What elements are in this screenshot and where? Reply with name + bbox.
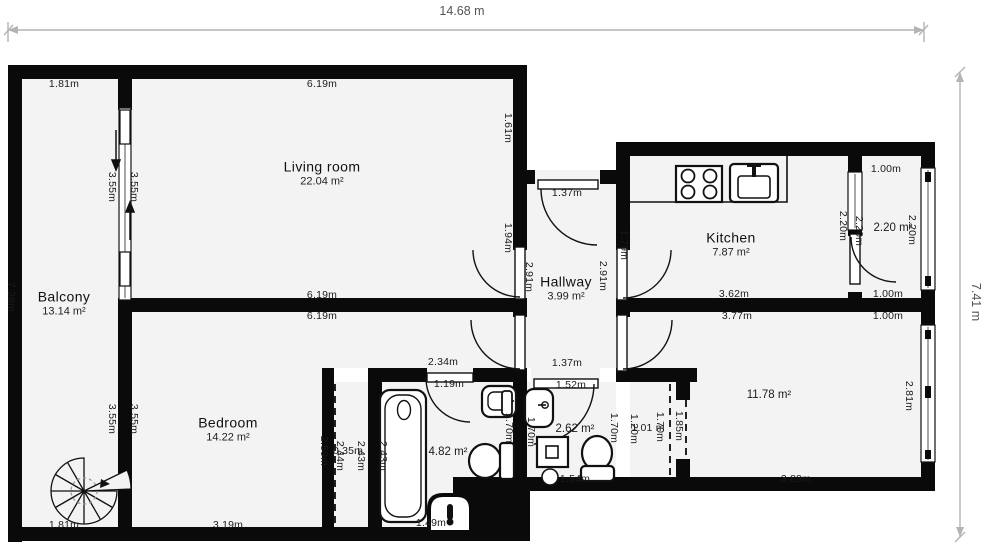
dimension-label: 1.70m (503, 413, 515, 443)
room-label-living: Living room 22.04 m² (284, 159, 361, 188)
dimension-label: 6.19m (307, 78, 337, 90)
stove-icon (676, 166, 722, 202)
dimension-label: 1.54m (560, 473, 590, 485)
dimension-label: 2.91m (523, 262, 535, 292)
dimension-label: 7.26m (5, 282, 17, 312)
small-room-window (921, 168, 935, 290)
dimension-label: 2.20m (906, 215, 918, 245)
dimension-label: 2.43m (355, 441, 367, 471)
dimension-label: 3.62m (719, 288, 749, 300)
dimension-label: 6.19m (307, 310, 337, 322)
dimension-label: 1.00m (873, 310, 903, 322)
room-name: Balcony (38, 289, 91, 305)
room-area-big-room: 11.78 m² (747, 389, 792, 401)
room-area: 7.87 m² (706, 247, 756, 259)
dimension-label: 1.85m (673, 411, 685, 441)
room-area-bathroom: 4.82 m² (429, 446, 468, 458)
dimension-label: 1.52m (556, 379, 586, 391)
dimension-label: 2.59m (318, 436, 330, 466)
dimension-label: 2.81m (903, 381, 915, 411)
bathroom-toilet-icon (469, 443, 514, 479)
room-name: Living room (284, 159, 361, 175)
big-room-window (921, 325, 935, 462)
dimension-label: 1.37m (552, 187, 582, 199)
room-name: Kitchen (706, 230, 756, 246)
room-name: Hallway (540, 274, 592, 290)
room-area: 13.14 m² (38, 306, 91, 318)
wall-radiator-icon (502, 391, 512, 415)
dimension-label: 1.94m (502, 223, 514, 253)
room-area: 14.22 m² (198, 432, 258, 444)
room-label-kitchen: Kitchen 7.87 m² (706, 230, 756, 259)
overall-width-label: 14.68 m (439, 4, 484, 18)
room-label-hallway: Hallway 3.99 m² (540, 274, 592, 303)
dimension-label: 1.70m (654, 412, 666, 442)
dimension-label: 3.55m (106, 404, 118, 434)
floorplan-viewer: 14.68 m 7.41 m Balcony 13.14 m² Living r… (0, 0, 992, 544)
room-name: Bedroom (198, 415, 258, 431)
dimension-label: 3.19m (213, 519, 243, 531)
dimension-label: 1.81m (49, 519, 79, 531)
dimension-label: 3.89m (781, 473, 811, 485)
dimension-label: 1.79m (618, 230, 630, 260)
floorplan-drawing (0, 0, 992, 544)
dimension-label: 2.20m (853, 216, 865, 246)
dimension-label: 1.00m (871, 163, 901, 175)
dimension-label: 3.55m (128, 172, 140, 202)
dimension-label: 1.70m (525, 417, 537, 447)
dimension-label: 1.61m (502, 113, 514, 143)
dimension-label: 1.70m (608, 413, 620, 443)
room-area: 22.04 m² (284, 176, 361, 188)
dimension-label: 2.91m (597, 261, 609, 291)
kitchen-sink-icon (730, 164, 778, 202)
dimension-label: 2.20m (837, 211, 849, 241)
dimension-label: 1.19m (434, 378, 464, 390)
room-label-bedroom: Bedroom 14.22 m² (198, 415, 258, 444)
dimension-label: 2.34m (428, 356, 458, 368)
dimension-label: 2.43m (377, 441, 389, 471)
room-area: 3.99 m² (540, 291, 592, 303)
dimension-label: 3.55m (106, 172, 118, 202)
room-area-wc: 2.62 m² (556, 423, 595, 435)
dimension-label: 6.19m (307, 289, 337, 301)
dimension-label: 3.77m (722, 310, 752, 322)
dimension-label: 1.00m (873, 288, 903, 300)
dimension-label: 1.49m (416, 517, 446, 529)
overall-height-label: 7.41 m (969, 283, 983, 321)
dimension-label: 1.37m (552, 357, 582, 369)
dimension-label: 3.55m (128, 404, 140, 434)
room-label-balcony: Balcony 13.14 m² (38, 289, 91, 318)
dimension-label: 1.81m (49, 78, 79, 90)
